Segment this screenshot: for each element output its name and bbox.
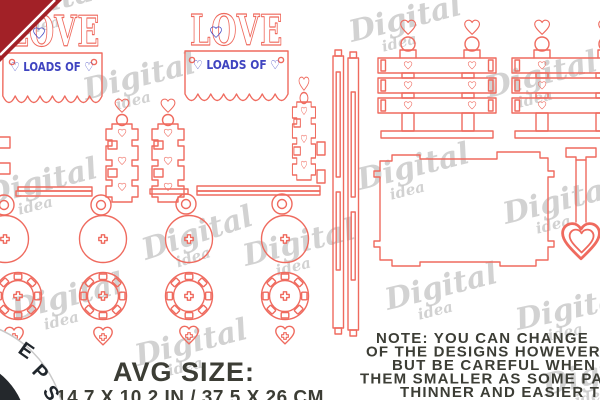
edge-part: [317, 170, 325, 183]
format-badge: E P S: [0, 320, 65, 400]
note-block: NOTE: YOU CAN CHANGE OF THE DESIGNS HOWE…: [360, 330, 600, 400]
axle-strip-1: [333, 50, 344, 334]
ring-part: [176, 194, 196, 214]
heart-post: [292, 77, 315, 180]
avg-size-label: AVG SIZE:: [113, 357, 255, 387]
edge-part: [317, 142, 325, 155]
heart-post: [152, 99, 184, 202]
wheel-spoked: [262, 273, 309, 320]
heart-charm: [94, 327, 112, 345]
note-line: THINNER AND EASIER TO: [400, 384, 600, 400]
avg-size-block: AVG SIZE: 14.7 X 10.2 IN / 37.5 X 26 CM: [56, 357, 324, 400]
loads-of-panel-2: ♡ LOADS OF ♡: [185, 51, 288, 101]
ring-part: [91, 195, 111, 215]
heart-post: [106, 99, 138, 202]
axle-strip-2: [348, 52, 359, 336]
loads-of-label: ♡ LOADS OF ♡: [11, 59, 94, 74]
ring-part: [272, 194, 292, 214]
love-word: LOVE: [190, 6, 283, 55]
edge-part: [0, 137, 10, 148]
wheel-plain: [0, 216, 29, 263]
laser-cut-sheet: Digital idea LOVE LOVE: [0, 0, 600, 400]
heart-charm: [276, 326, 294, 344]
wheel-spoked: [166, 273, 213, 320]
loads-of-label: ♡ LOADS OF ♡: [193, 57, 280, 72]
product-preview: Digital idea LOVE LOVE: [0, 0, 600, 400]
avg-size-value: 14.7 X 10.2 IN / 37.5 X 26 CM: [56, 388, 324, 400]
love-sign-2: LOVE: [190, 6, 283, 55]
wheel-plain: [80, 216, 127, 263]
